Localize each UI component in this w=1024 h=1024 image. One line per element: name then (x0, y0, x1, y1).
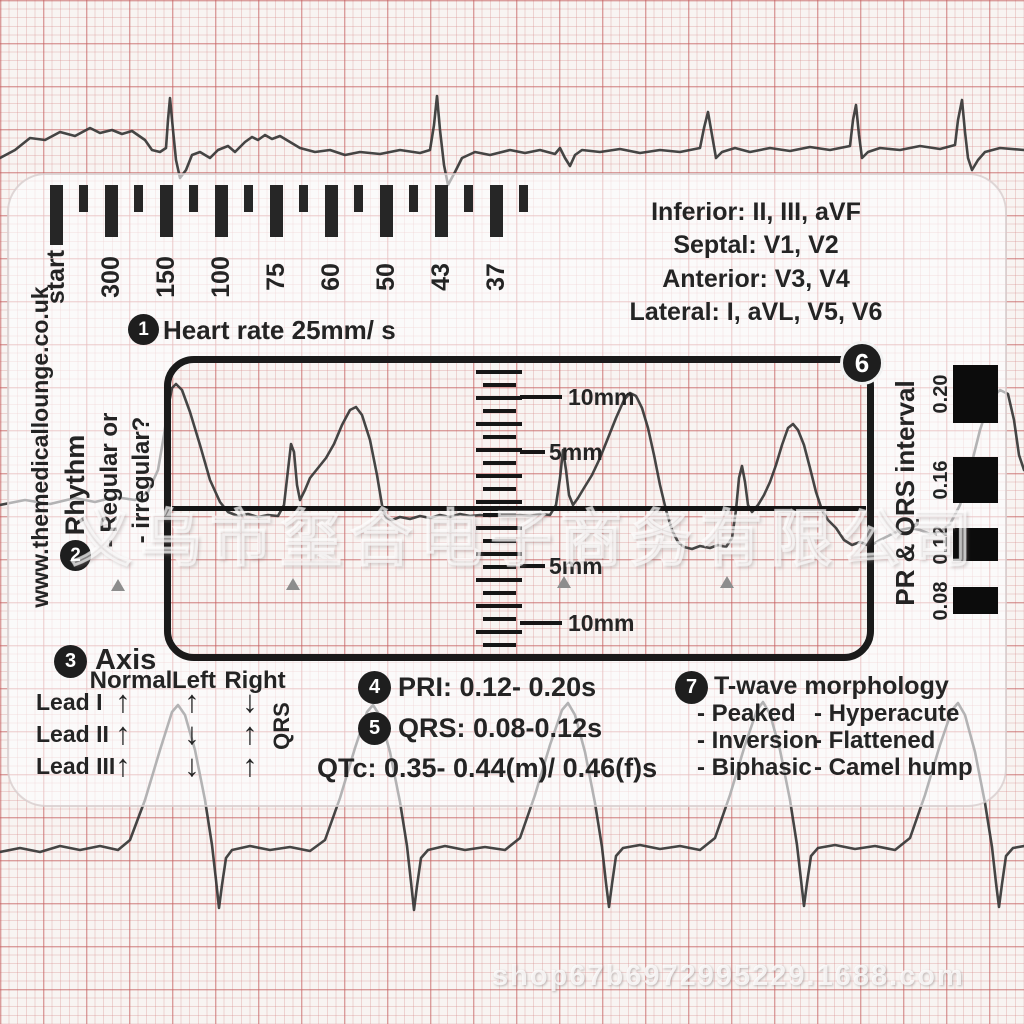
seller-watermark-bottom: shop67b6972995229.1688.com (492, 960, 965, 993)
seller-watermark-center: 义乌市玺合电子商务有限公司 (70, 488, 980, 578)
ecg-ruler-product-photo: start3001501007560504337 1 Heart rate 25… (0, 0, 1024, 1024)
